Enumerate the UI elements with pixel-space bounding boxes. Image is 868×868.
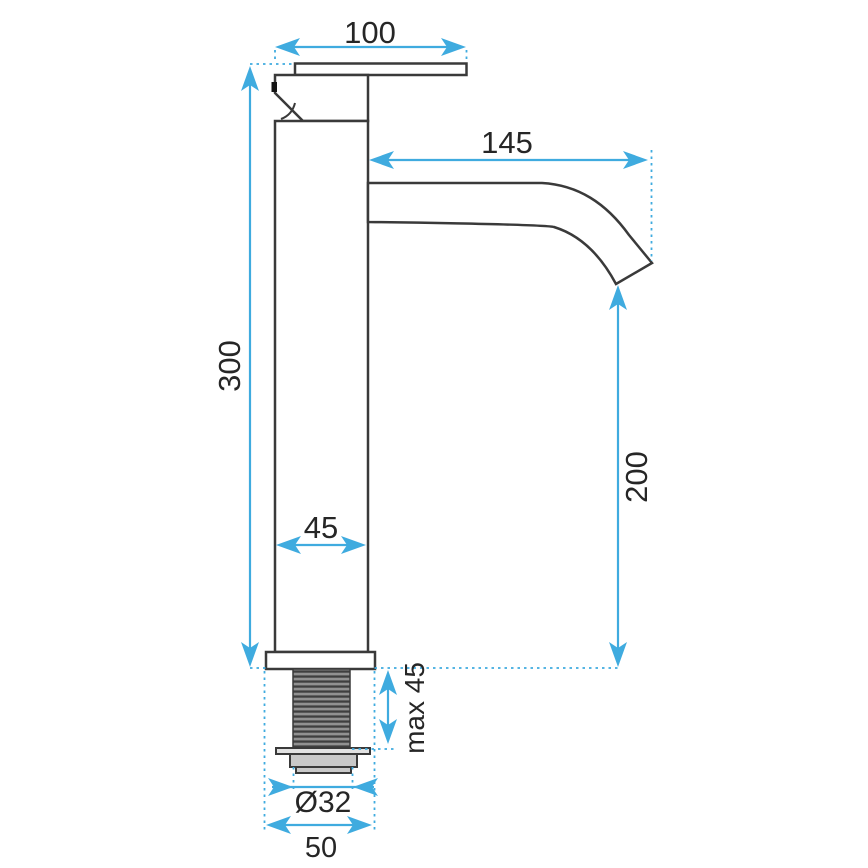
dimension-total-height: 300 <box>212 66 259 667</box>
threaded-shank <box>293 669 350 748</box>
dimension-handle-length: 100 <box>275 15 466 56</box>
dim-label-total-height: 300 <box>212 340 247 392</box>
arrowhead-right-icon <box>268 778 293 796</box>
dimension-max-mount-thickness: max 45 <box>379 662 430 754</box>
dim-label-base-width: 50 <box>305 832 337 864</box>
arrowhead-left-icon <box>353 778 378 796</box>
dim-label-spout-reach: 145 <box>481 125 533 160</box>
base-plate <box>266 652 375 669</box>
faucet-dimension-drawing: 100 145 300 45 200 max 45 <box>0 0 868 868</box>
dimension-thread-diameter: Ø32 <box>268 778 378 819</box>
dim-label-body-width: 45 <box>304 510 338 545</box>
drawing-svg: 100 145 300 45 200 max 45 <box>0 0 868 868</box>
dimension-spout-reach: 145 <box>369 125 648 169</box>
mounting-nut-lower <box>296 767 351 773</box>
faucet-spout <box>368 183 652 284</box>
faucet-outline <box>266 64 652 774</box>
dim-label-outlet-height: 200 <box>619 451 654 503</box>
dim-label-thread-diameter: Ø32 <box>295 786 352 819</box>
dim-label-max-mount-thickness: max 45 <box>399 662 430 754</box>
lever-handle-plate <box>295 64 467 76</box>
dimension-base-width: 50 <box>266 816 372 864</box>
dimension-outlet-height: 200 <box>609 285 654 667</box>
lever-pivot-pin <box>272 82 278 92</box>
mounting-nut <box>290 754 357 767</box>
faucet-body <box>275 121 368 652</box>
dim-label-handle-length: 100 <box>344 15 396 50</box>
